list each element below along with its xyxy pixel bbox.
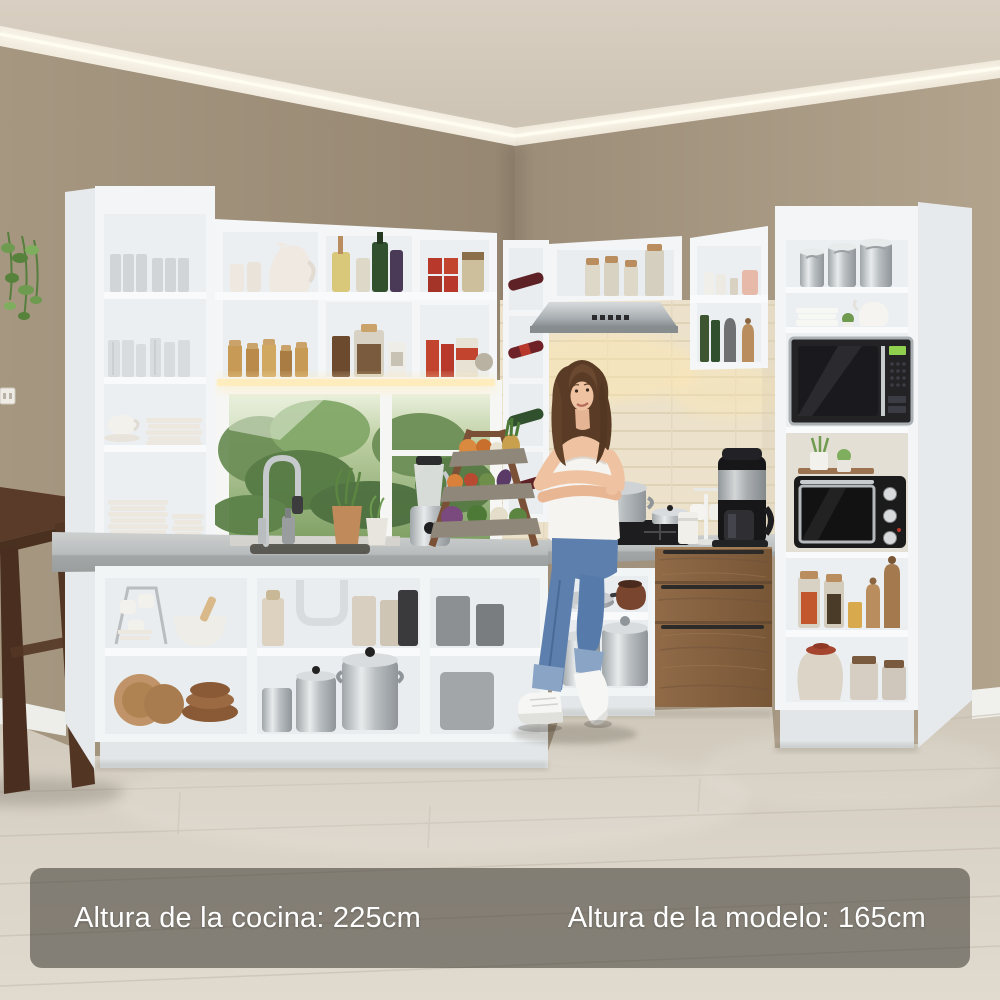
microwave — [790, 338, 912, 424]
mini-oven-shelf — [786, 433, 908, 552]
microwave-display — [889, 346, 906, 355]
upper-cabinet-right — [690, 226, 768, 370]
coffee-maker — [712, 448, 771, 548]
caption-bar: Altura de la cocina: 225cm Altura de la … — [30, 868, 970, 968]
spice-jars — [228, 339, 308, 377]
upper-cabinets-left — [215, 219, 497, 391]
cup-and-plates-row — [104, 415, 202, 445]
oil-and-mills — [700, 315, 754, 362]
hood-cabinet — [549, 236, 682, 302]
pantry-column-right — [775, 202, 972, 752]
kitchen-scene — [0, 0, 1000, 1000]
plinth-right — [780, 710, 914, 748]
wall-outlet — [0, 388, 15, 404]
range-hood — [530, 302, 678, 333]
model-neck — [575, 409, 590, 430]
base-cabinets-left — [95, 566, 548, 770]
kitchen-product-photo: Altura de la cocina: 225cm Altura de la … — [0, 0, 1000, 1000]
kitchen-height-caption: Altura de la cocina: 225cm — [74, 902, 421, 935]
canned-goods — [428, 252, 484, 292]
salt-box — [678, 512, 698, 544]
drawer-chest-wood — [655, 547, 772, 707]
model-height-caption: Altura de la modelo: 165cm — [568, 902, 926, 935]
